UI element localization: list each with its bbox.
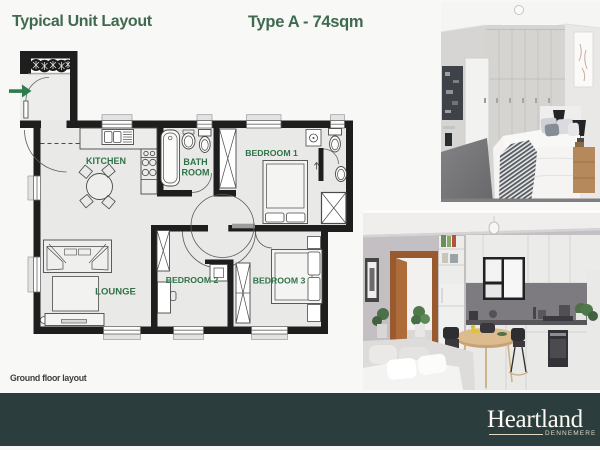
svg-text:BEDROOM 1: BEDROOM 1 — [245, 148, 298, 158]
svg-text:KITCHEN: KITCHEN — [86, 156, 126, 166]
svg-text:BEDROOM 3: BEDROOM 3 — [253, 276, 306, 286]
svg-text:BEDROOM 2: BEDROOM 2 — [166, 275, 219, 285]
svg-text:BATH: BATH — [183, 157, 207, 167]
svg-text:LOUNGE: LOUNGE — [95, 287, 136, 298]
svg-text:ROOM: ROOM — [182, 168, 210, 178]
